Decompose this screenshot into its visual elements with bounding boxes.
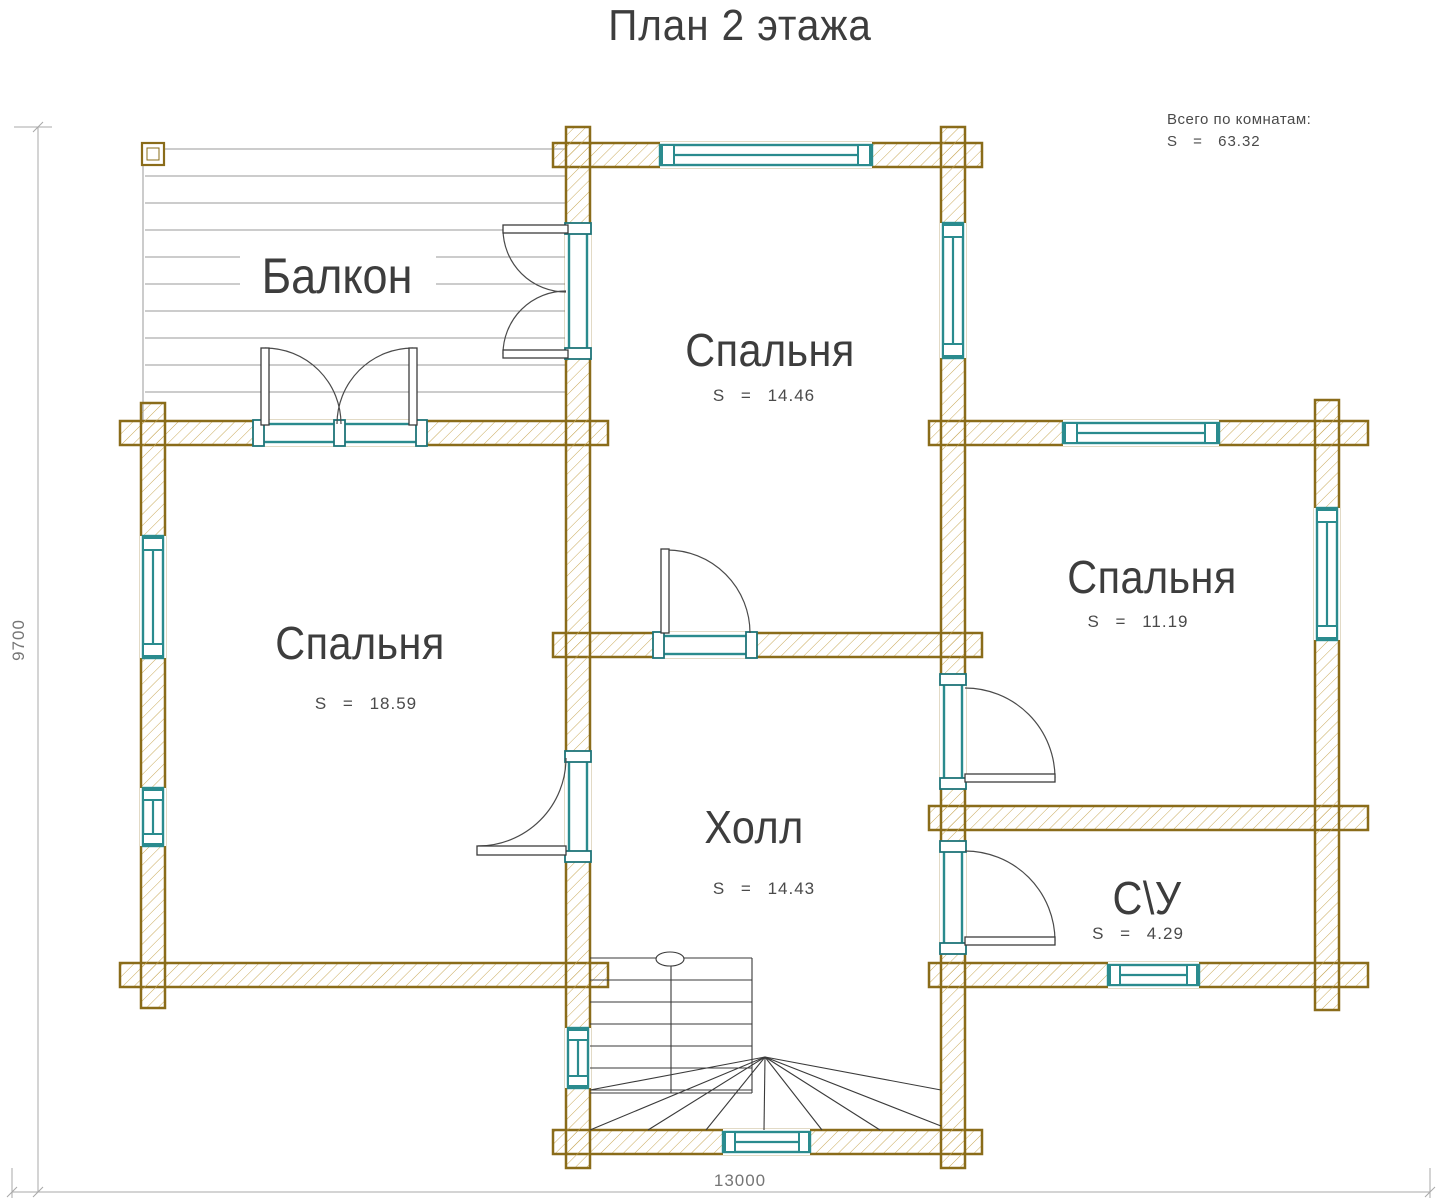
wall-bedroom-hall-divider xyxy=(553,633,982,657)
window xyxy=(1317,508,1337,640)
doors xyxy=(253,223,1055,954)
window xyxy=(143,536,163,658)
wall-bedroom-bath-divider xyxy=(929,806,1368,830)
room-area-bedroom-top: S = 14.46 xyxy=(713,386,815,405)
page-title: План 2 этажа xyxy=(608,0,872,49)
room-label-bathroom: С\У xyxy=(1112,873,1181,925)
floor-plan-page: Балкон Спальня S = 14.46 Спальня S = 18.… xyxy=(0,0,1436,1200)
right-bedroom-door xyxy=(940,674,1055,789)
dimension-height: 9700 xyxy=(9,619,28,661)
room-label-hall: Холл xyxy=(704,802,803,854)
room-area-bathroom: S = 4.29 xyxy=(1092,924,1184,943)
stairs xyxy=(590,952,941,1130)
room-label-bedroom-top: Спальня xyxy=(685,325,854,377)
floor-plan-canvas: Балкон Спальня S = 14.46 Спальня S = 18.… xyxy=(0,0,1436,1200)
bathroom-door xyxy=(940,841,1055,954)
window xyxy=(1063,423,1219,443)
room-area-bedroom-left: S = 18.59 xyxy=(315,694,417,713)
summary-label: Всего по комнатам: xyxy=(1167,111,1311,128)
window xyxy=(723,1132,810,1152)
wall-left-outer xyxy=(141,403,165,1008)
window xyxy=(943,223,963,358)
left-bedroom-door xyxy=(477,751,591,862)
dimensions: 13000 9700 xyxy=(7,122,1435,1198)
top-bedroom-door xyxy=(653,549,757,658)
room-label-balcony: Балкон xyxy=(262,249,413,305)
stair-newel xyxy=(656,952,684,966)
summary-value: S = 63.32 xyxy=(1167,133,1261,150)
dimension-width: 13000 xyxy=(714,1171,766,1190)
room-area-hall: S = 14.43 xyxy=(713,879,815,898)
window xyxy=(660,145,872,165)
wall-right-outer xyxy=(1315,400,1339,1010)
balcony-french-door xyxy=(253,348,427,446)
bedroom-balcony-door xyxy=(503,223,591,359)
room-area-bedroom-right: S = 11.19 xyxy=(1088,612,1189,631)
room-label-bedroom-right: Спальня xyxy=(1067,552,1236,604)
room-labels: Балкон Спальня S = 14.46 Спальня S = 18.… xyxy=(262,249,1237,943)
window xyxy=(143,788,163,846)
balcony-post xyxy=(142,143,164,165)
room-label-bedroom-left: Спальня xyxy=(275,618,444,670)
window xyxy=(1108,965,1199,985)
window xyxy=(568,1028,588,1088)
wall-left-bedroom-bottom xyxy=(120,963,608,987)
